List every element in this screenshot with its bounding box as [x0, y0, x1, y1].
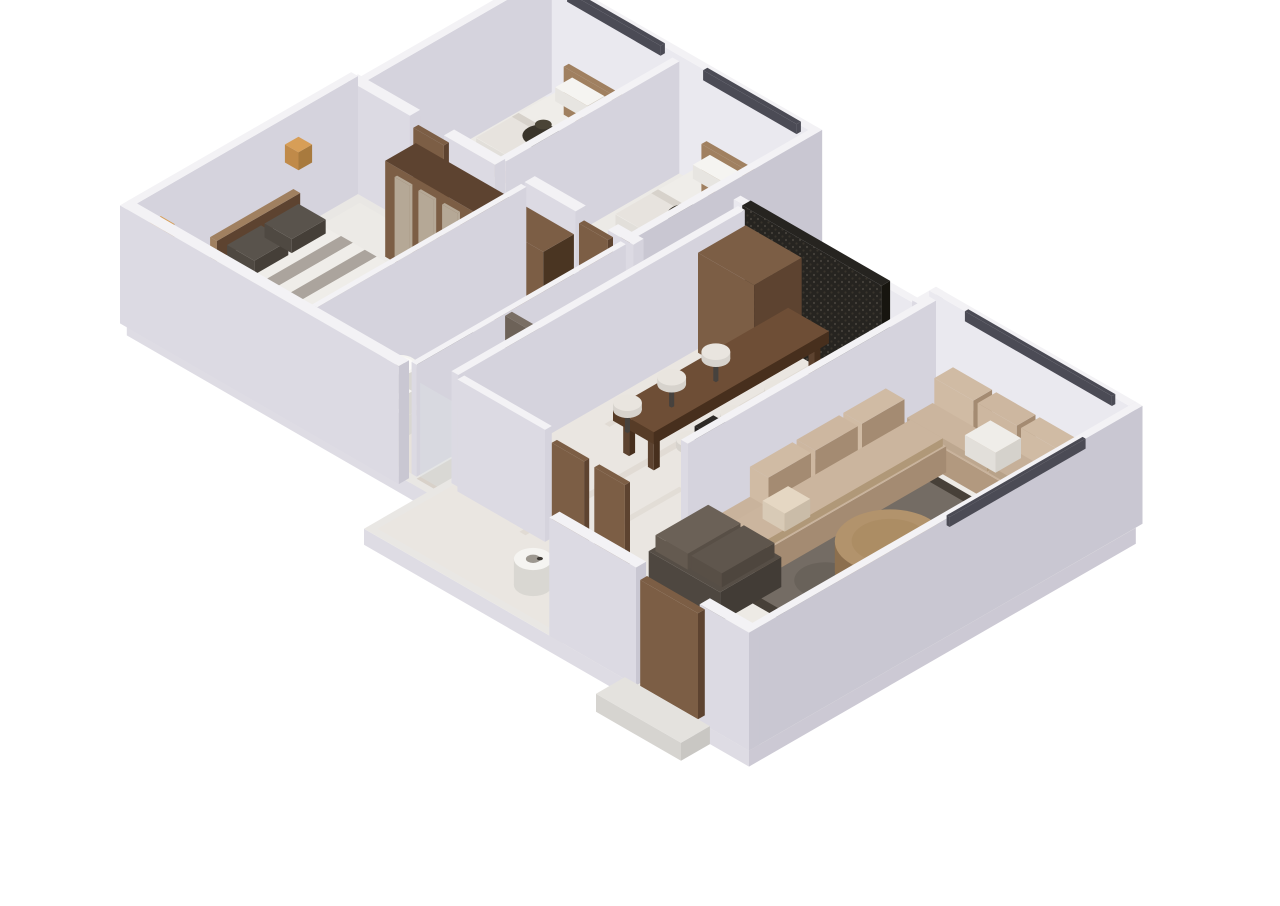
bar-chair: [657, 369, 686, 393]
bar-chair: [701, 343, 730, 367]
floor-plan-render: [0, 0, 1280, 906]
bar-chair: [613, 394, 642, 418]
floor-plan-stage: [0, 0, 1280, 906]
